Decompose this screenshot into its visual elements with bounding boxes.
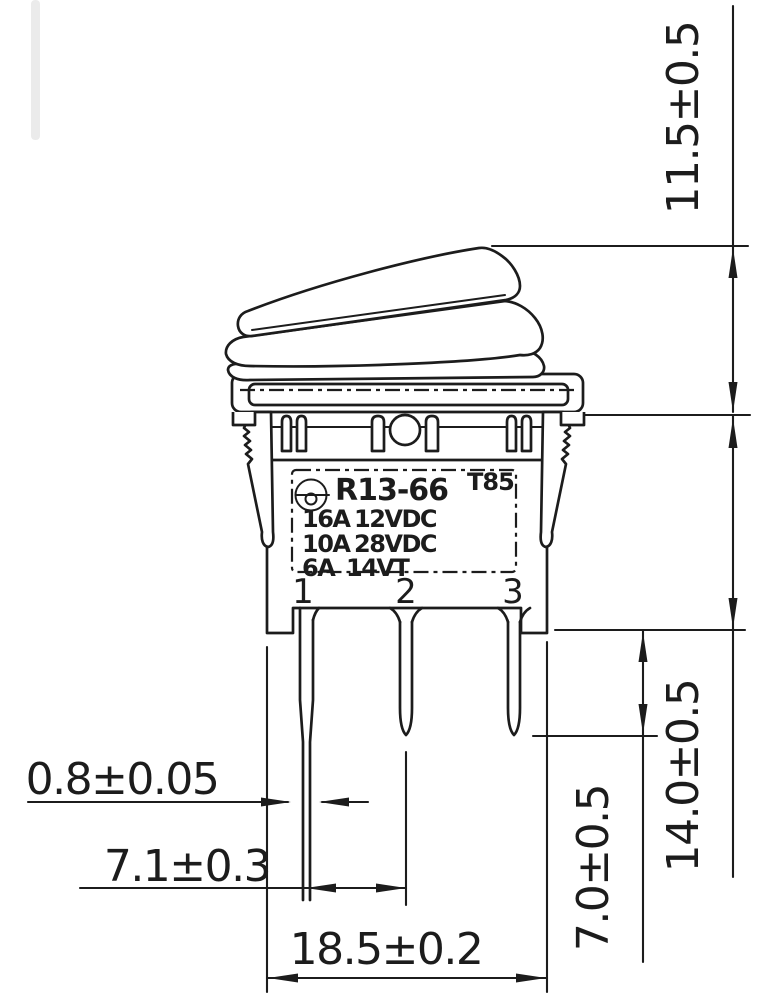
arrowhead	[639, 632, 648, 662]
arrowhead	[729, 248, 738, 278]
latch-post	[507, 416, 516, 451]
latch-post	[297, 416, 306, 451]
rocker-switch-drawing: R13-66 T85 16A 12VDC 10A 28VDC 6A 14VT 1…	[0, 0, 765, 1000]
arrowhead	[729, 598, 738, 628]
dim-text-terminal-thickness: 0.8±0.05	[26, 754, 219, 805]
drawing-sheet: R13-66 T85 16A 12VDC 10A 28VDC 6A 14VT 1…	[0, 0, 765, 1000]
dim-text-terminal-length: 7.0±0.5	[568, 785, 619, 951]
rating-current: 16A	[302, 505, 351, 533]
terminal-pin-2	[390, 608, 422, 735]
model-number-text: R13-66	[335, 473, 448, 508]
dim-text-housing-depth: 14.0±0.5	[658, 680, 709, 873]
pivot-circle	[390, 415, 420, 445]
pin-edge	[310, 620, 313, 900]
dim-text-terminal-pitch: 7.1±0.3	[104, 841, 270, 892]
pin-flare	[313, 608, 319, 620]
arrowhead	[261, 798, 291, 807]
pin-label-2: 2	[395, 572, 417, 612]
arrowhead	[639, 704, 648, 734]
pin-label-1: 1	[292, 572, 314, 612]
arrowhead	[729, 418, 738, 448]
latch-post	[426, 416, 438, 451]
latch-post	[372, 416, 384, 451]
arrowhead	[516, 974, 546, 983]
pin-outline	[400, 622, 412, 735]
temp-rating-text: T85	[467, 468, 514, 496]
scan-artifact-smudge	[31, 0, 40, 140]
dim-terminal-length: 7.0±0.5	[533, 630, 657, 962]
dim-text-body-width: 18.5±0.2	[290, 924, 483, 975]
rating-voltage: 12VDC	[354, 505, 437, 533]
bezel-corner-stub-right	[561, 412, 584, 425]
latch-posts	[282, 415, 531, 451]
dim-terminal-thickness: 0.8±0.05	[26, 754, 368, 807]
pin-edge	[300, 608, 303, 900]
mounting-clip-right	[541, 412, 570, 547]
arrowhead	[319, 798, 349, 807]
latch-post	[522, 416, 531, 451]
pin-outline	[508, 622, 520, 735]
pin-label-3: 3	[502, 572, 524, 612]
bezel-corner-stub-left	[233, 412, 255, 425]
arrowhead	[376, 884, 406, 893]
dim-text-actuator-height: 11.5±0.5	[658, 22, 709, 215]
terminal-pin-1	[300, 608, 319, 900]
latch-post	[282, 416, 291, 451]
rating-row: 16A 12VDC	[302, 505, 437, 533]
arrowhead	[729, 382, 738, 412]
mounting-clip-left	[244, 412, 273, 547]
